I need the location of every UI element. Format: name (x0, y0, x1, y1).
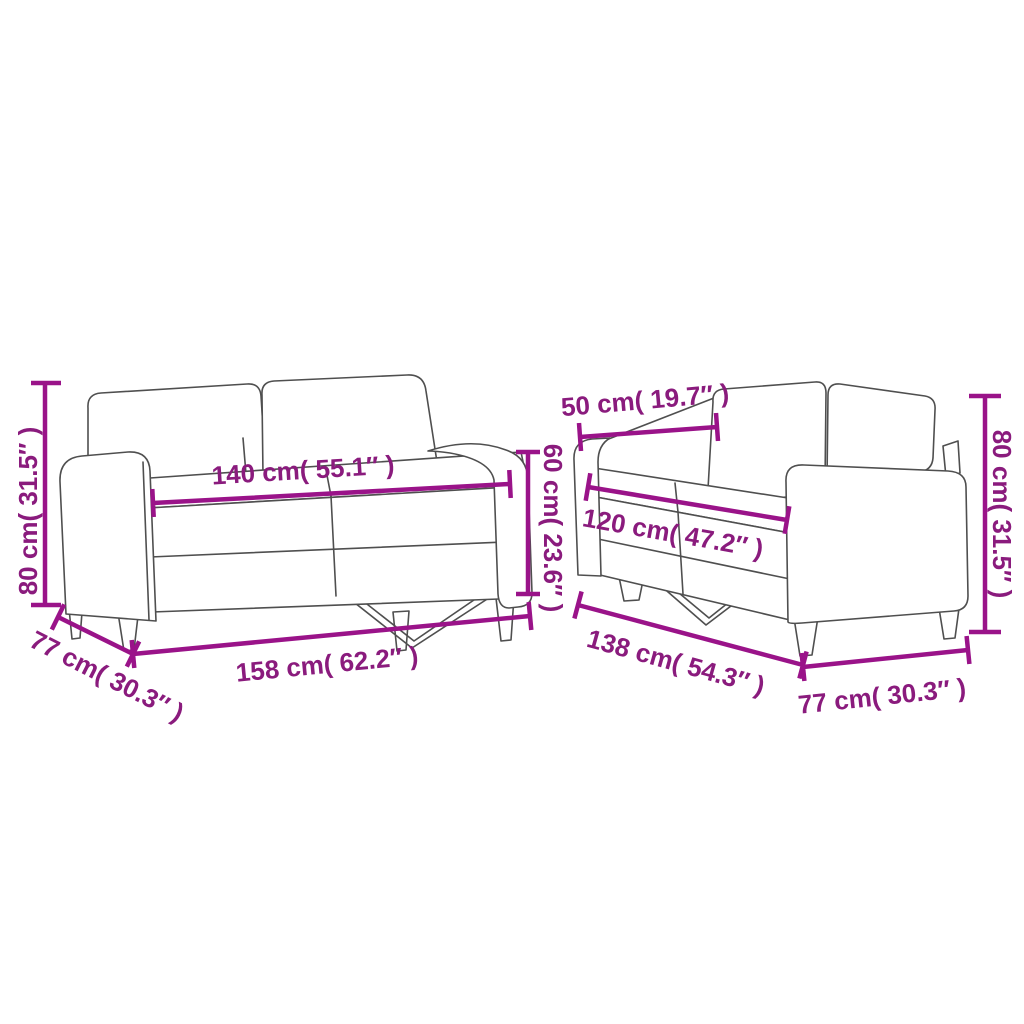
sofa-large-drawing (60, 375, 532, 651)
sofa-large-left-armrest (60, 452, 156, 621)
dim-label-sofa1-overall-height: 80 cm( 31.5″ ) (15, 427, 41, 596)
dim-label-sofa1-back-height: 60 cm( 23.6″ ) (540, 444, 566, 613)
sofa-set-line-art (0, 0, 1024, 1024)
dim-label-sofa2-overall-height: 80 cm( 31.5″ ) (989, 430, 1015, 599)
diagram-canvas: 80 cm( 31.5″ ) 140 cm( 55.1″ ) 77 cm( 30… (0, 0, 1024, 1024)
sofa-small-right-armrest (786, 465, 968, 623)
